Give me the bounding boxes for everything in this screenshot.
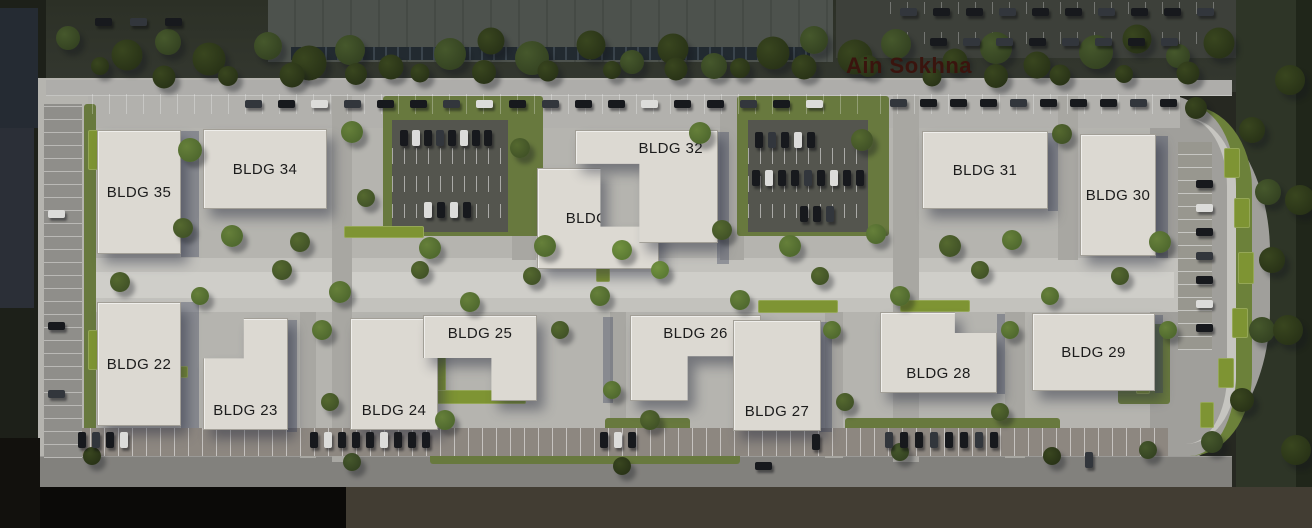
tree (1285, 185, 1312, 215)
tree (991, 403, 1009, 421)
car (999, 8, 1016, 16)
car (804, 170, 812, 186)
car (817, 170, 825, 186)
tree (757, 37, 790, 70)
tree (419, 237, 441, 259)
car (900, 432, 908, 448)
tree (665, 58, 688, 81)
tree (1043, 447, 1061, 465)
tree (792, 55, 817, 80)
tree (472, 60, 496, 84)
tree (218, 66, 238, 86)
tree (341, 121, 363, 143)
car (1161, 38, 1178, 46)
car (448, 130, 456, 146)
tree (1239, 117, 1265, 143)
car (933, 8, 950, 16)
tree (110, 272, 130, 292)
car (1197, 8, 1214, 16)
car (92, 432, 100, 448)
car (450, 202, 458, 218)
car (890, 99, 907, 107)
car (960, 432, 968, 448)
tree (939, 235, 961, 257)
tree (811, 267, 829, 285)
tree (153, 66, 176, 89)
tree (1052, 124, 1072, 144)
car (830, 170, 838, 186)
tree (1281, 435, 1311, 465)
car (463, 202, 471, 218)
tree (345, 63, 367, 85)
tree (357, 189, 375, 207)
car (410, 100, 427, 108)
car (826, 206, 834, 222)
car (963, 38, 980, 46)
trees-and-cars-layer (0, 0, 1312, 528)
car (400, 130, 408, 146)
car (755, 462, 772, 470)
car (130, 18, 147, 26)
car (1070, 99, 1087, 107)
tree (1255, 179, 1281, 205)
tree (1050, 65, 1071, 86)
tree (335, 35, 365, 65)
car (1100, 99, 1117, 107)
tree (1111, 267, 1129, 285)
car (975, 432, 983, 448)
tree (538, 61, 559, 82)
tree (343, 453, 361, 471)
car (900, 8, 917, 16)
car (966, 8, 983, 16)
car (1085, 452, 1093, 468)
car (443, 100, 460, 108)
area-label-ain-sokhna: Ain Sokhna (846, 53, 972, 79)
tree (800, 26, 828, 54)
tree (651, 261, 669, 279)
car (945, 432, 953, 448)
car (1095, 38, 1112, 46)
car (352, 432, 360, 448)
tree (866, 224, 886, 244)
car (575, 100, 592, 108)
car (1196, 324, 1213, 332)
car (1196, 300, 1213, 308)
car (791, 170, 799, 186)
car (806, 100, 823, 108)
tree (603, 381, 621, 399)
car (980, 99, 997, 107)
tree (478, 28, 505, 55)
tree (1149, 231, 1171, 253)
car (436, 130, 444, 146)
car (1130, 99, 1147, 107)
car (48, 390, 65, 398)
car (344, 100, 361, 108)
tree (435, 410, 455, 430)
tree (1041, 287, 1059, 305)
car (813, 206, 821, 222)
tree (1185, 97, 1207, 119)
car (472, 130, 480, 146)
tree (272, 260, 292, 280)
car (1128, 38, 1145, 46)
car (1098, 8, 1115, 16)
tree (1001, 321, 1019, 339)
car (614, 432, 622, 448)
tree (191, 287, 209, 305)
car (460, 130, 468, 146)
car (707, 100, 724, 108)
car (78, 432, 86, 448)
car (794, 132, 802, 148)
car (752, 170, 760, 186)
car (422, 432, 430, 448)
car (380, 432, 388, 448)
tree (329, 281, 351, 303)
car (1196, 228, 1213, 236)
tree (851, 129, 873, 151)
car (990, 432, 998, 448)
car (476, 100, 493, 108)
tree (434, 38, 466, 70)
tree (112, 40, 143, 71)
car (366, 432, 374, 448)
car (1062, 38, 1079, 46)
tree (823, 321, 841, 339)
tree (620, 50, 644, 74)
tree (730, 290, 750, 310)
car (800, 206, 808, 222)
car (755, 132, 763, 148)
car (1040, 99, 1057, 107)
car (245, 100, 262, 108)
car (1196, 204, 1213, 212)
car (1131, 8, 1148, 16)
tree (689, 122, 711, 144)
car (996, 38, 1013, 46)
tree (701, 53, 727, 79)
tree (1249, 317, 1275, 343)
car (674, 100, 691, 108)
car (807, 132, 815, 148)
car (843, 170, 851, 186)
car (408, 432, 416, 448)
car (1196, 252, 1213, 260)
tree (411, 261, 429, 279)
tree (1002, 230, 1022, 250)
car (394, 432, 402, 448)
tree (56, 26, 80, 50)
tree (1275, 65, 1305, 95)
tree (890, 286, 910, 306)
tree (1159, 321, 1177, 339)
tree (980, 32, 1012, 64)
car (48, 322, 65, 330)
tree (779, 235, 801, 257)
surrounding-area-bottom-left (0, 487, 346, 528)
tree (1273, 315, 1303, 345)
car (1196, 276, 1213, 284)
tree (971, 261, 989, 279)
tree (523, 267, 541, 285)
tree (280, 63, 305, 88)
car (778, 170, 786, 186)
car (1032, 8, 1049, 16)
car (641, 100, 658, 108)
tree (1139, 441, 1157, 459)
car (95, 18, 112, 26)
tree (1115, 65, 1133, 83)
car (377, 100, 394, 108)
surrounding-corner (0, 438, 40, 528)
tree (712, 220, 732, 240)
car (424, 130, 432, 146)
car (106, 432, 114, 448)
car (768, 132, 776, 148)
car (781, 132, 789, 148)
car (856, 170, 864, 186)
car (484, 130, 492, 146)
tree (91, 57, 109, 75)
car (324, 432, 332, 448)
masterplan-map: BLDG 35 BLDG 34 BLDG 33 BLDG 32 BLDG 31 … (0, 0, 1312, 528)
car (950, 99, 967, 107)
car (920, 99, 937, 107)
car (600, 432, 608, 448)
car (930, 432, 938, 448)
car (278, 100, 295, 108)
tree (1177, 62, 1200, 85)
car (1010, 99, 1027, 107)
tree (411, 64, 430, 83)
car (1196, 180, 1213, 188)
tree (254, 32, 282, 60)
tree (730, 58, 750, 78)
tree (590, 286, 610, 306)
car (1160, 99, 1177, 107)
car (165, 18, 182, 26)
car (930, 38, 947, 46)
car (915, 432, 923, 448)
car (812, 434, 820, 450)
tree (173, 218, 193, 238)
tree (551, 321, 569, 339)
tree (312, 320, 332, 340)
car (120, 432, 128, 448)
tree (577, 31, 606, 60)
car (885, 432, 893, 448)
tree (379, 55, 404, 80)
car (1065, 8, 1082, 16)
car (1164, 8, 1181, 16)
tree (603, 61, 621, 79)
tree (178, 138, 202, 162)
car (338, 432, 346, 448)
tree (1024, 52, 1051, 79)
tree (1259, 247, 1285, 273)
tree (321, 393, 339, 411)
tree (510, 138, 530, 158)
car (412, 130, 420, 146)
tree (534, 235, 556, 257)
tree (836, 393, 854, 411)
tree (221, 225, 243, 247)
car (608, 100, 625, 108)
car (48, 210, 65, 218)
tree (1204, 28, 1235, 59)
car (542, 100, 559, 108)
tree (83, 447, 101, 465)
car (310, 432, 318, 448)
tree (290, 232, 310, 252)
tree (155, 29, 181, 55)
car (773, 100, 790, 108)
car (437, 202, 445, 218)
car (311, 100, 328, 108)
tree (984, 64, 1008, 88)
tree (460, 292, 480, 312)
car (740, 100, 757, 108)
car (509, 100, 526, 108)
tree (640, 410, 660, 430)
tree (613, 457, 631, 475)
car (628, 432, 636, 448)
tree (1230, 388, 1254, 412)
car (1029, 38, 1046, 46)
tree (612, 240, 632, 260)
car (424, 202, 432, 218)
car (765, 170, 773, 186)
tree (1201, 431, 1223, 453)
